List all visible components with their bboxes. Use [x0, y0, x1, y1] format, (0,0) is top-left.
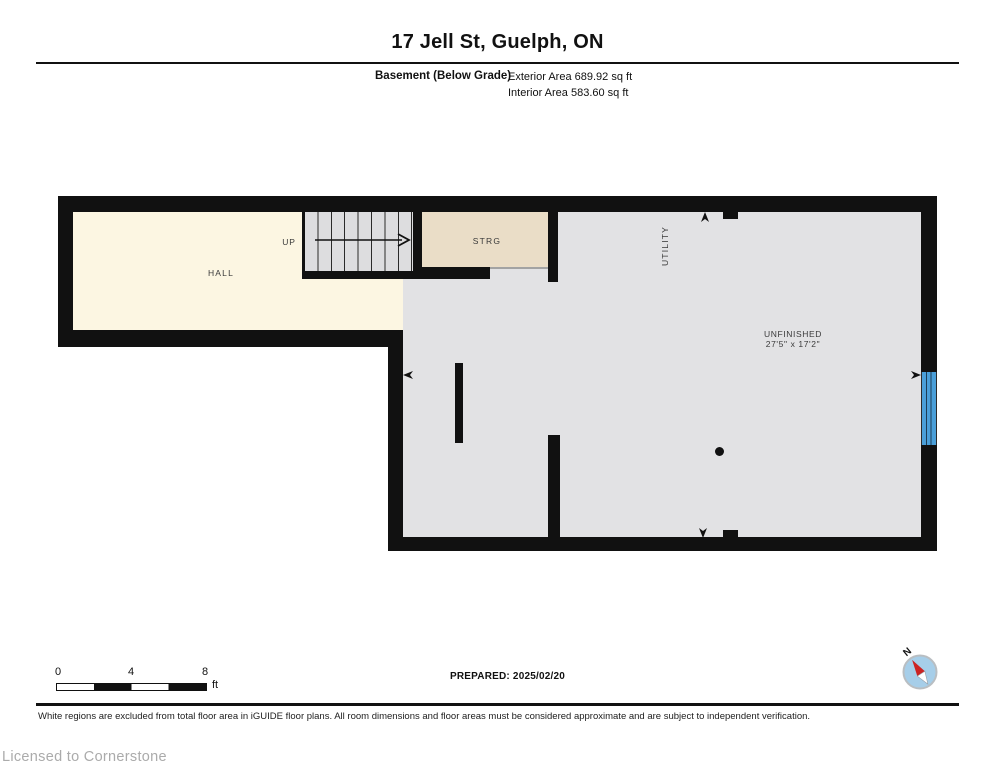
- scale-bar-ruler: [56, 683, 207, 691]
- dimension-arrow-down-icon: [697, 526, 709, 538]
- wall-stairs-bottom: [302, 271, 422, 279]
- dimension-arrow-up-icon: [699, 212, 711, 224]
- license-text: Licensed to Cornerstone: [2, 749, 167, 765]
- floor-label: Basement (Below Grade): [375, 70, 511, 82]
- compass-icon: N: [894, 638, 944, 692]
- window-icon: [921, 372, 937, 445]
- floor-drain-dot: [715, 447, 724, 456]
- utility-label: UTILITY: [660, 216, 676, 276]
- storage-door-opening: [490, 267, 548, 269]
- prepared-date: PREPARED: 2025/02/20: [450, 671, 565, 682]
- header-divider: [36, 62, 959, 64]
- scale-tick-8: 8: [198, 666, 212, 678]
- wall-stub-bottom: [548, 435, 560, 543]
- scale-tick-0: 0: [51, 666, 65, 678]
- wall-left-hall: [58, 212, 73, 347]
- interior-area: Interior Area 583.60 sq ft: [508, 87, 628, 99]
- wall-bottom: [388, 537, 937, 551]
- wall-stairs-right: [413, 212, 422, 279]
- wall-lower-left: [388, 347, 403, 537]
- scale-unit-label: ft: [212, 679, 218, 691]
- scale-tick-4: 4: [124, 666, 138, 678]
- stairs-up-label: UP: [276, 237, 302, 247]
- unfinished-label: UNFINISHED 27'5" x 17'2": [733, 330, 853, 349]
- wall-storage-bottom: [422, 267, 490, 279]
- wall-hall-bottom: [58, 330, 403, 347]
- wall-stairs-left: [302, 212, 305, 271]
- footer-divider: [36, 703, 959, 706]
- wall-tab-bottom: [723, 530, 738, 537]
- wall-right-lower: [921, 445, 937, 551]
- unfinished-room-dimensions: 27'5" x 17'2": [733, 340, 853, 350]
- storage-label: STRG: [461, 236, 513, 246]
- exterior-area: Exterior Area 689.92 sq ft: [508, 71, 632, 83]
- dimension-arrow-left-icon: [403, 369, 415, 381]
- disclaimer-text: White regions are excluded from total fl…: [38, 711, 968, 722]
- page-title: 17 Jell St, Guelph, ON: [0, 31, 995, 54]
- wall-right-upper: [921, 212, 937, 372]
- wall-tab-top: [723, 212, 738, 219]
- wall-top: [58, 196, 937, 212]
- dimension-arrow-right-icon: [909, 369, 921, 381]
- wall-storage-right: [548, 212, 558, 282]
- stairs-up-arrow-icon: [312, 232, 414, 248]
- hall-label: HALL: [198, 268, 244, 278]
- wall-stub-interior: [455, 363, 463, 443]
